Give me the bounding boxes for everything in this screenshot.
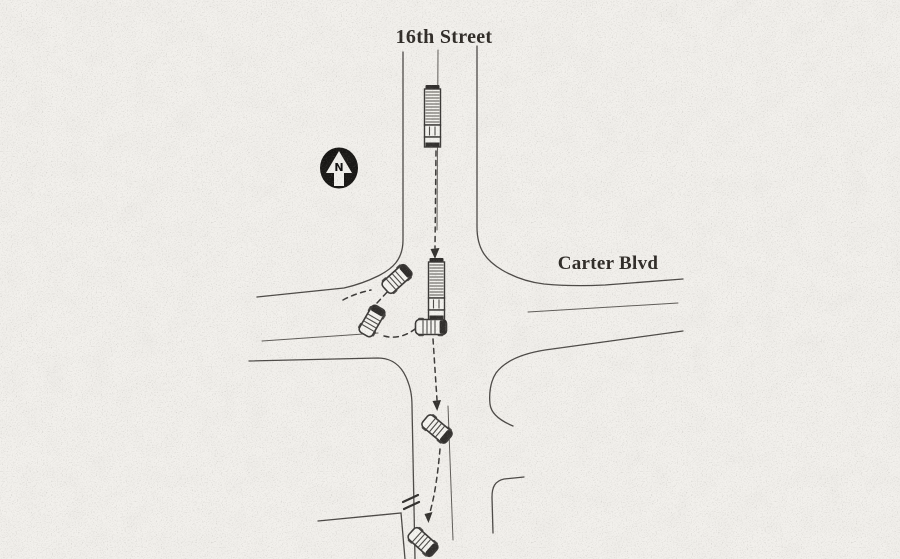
scanned-page: N 16th Street Carter Blvd bbox=[0, 0, 900, 559]
paper-blotch-overlay bbox=[0, 0, 900, 559]
collision-diagram: N 16th Street Carter Blvd bbox=[0, 0, 900, 559]
